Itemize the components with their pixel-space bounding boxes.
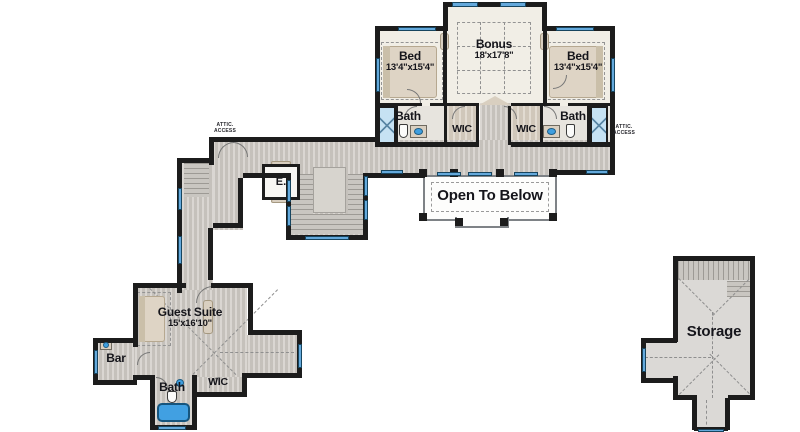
wall-segment	[177, 158, 182, 293]
window	[287, 206, 291, 226]
bed-right-dims: 13'4"x15'4"	[545, 63, 611, 73]
window	[178, 188, 182, 210]
guest-suite-dims: 15'x16'10"	[138, 319, 242, 329]
column	[549, 169, 557, 177]
wall-segment	[208, 228, 213, 280]
window	[381, 170, 403, 174]
window	[556, 27, 594, 31]
toilet-bath-left	[399, 124, 408, 138]
bath-guest-name: Bath	[151, 381, 193, 394]
window	[642, 348, 646, 372]
wall-segment	[641, 338, 677, 343]
column	[455, 218, 463, 226]
guest-suite-name: Guest Suite	[138, 306, 242, 319]
wall-segment	[248, 330, 302, 335]
room-label-wic-right: WIC	[507, 124, 545, 135]
room-label-wic-left: WIC	[443, 124, 481, 135]
window	[468, 172, 492, 176]
room-label-bath-guest: Bath	[151, 381, 193, 394]
window	[178, 236, 182, 264]
window	[586, 170, 608, 174]
attic-access-label-left: ATTIC. ACCESS	[203, 122, 247, 134]
window	[305, 236, 349, 240]
column	[500, 218, 508, 226]
window	[437, 172, 461, 176]
main-stair-landing	[313, 167, 346, 213]
window	[298, 344, 302, 368]
room-label-wic-guest: WIC	[196, 377, 240, 388]
wall-segment	[430, 103, 479, 106]
wall-segment	[375, 142, 479, 147]
wall-segment	[692, 398, 697, 430]
bed-left-dims: 13'4"x15'4"	[377, 63, 443, 73]
wall-segment	[93, 380, 137, 385]
ceiling-dash-line	[645, 357, 711, 358]
wall-segment	[211, 283, 253, 288]
wall-segment	[248, 283, 253, 335]
window	[398, 27, 436, 31]
room-label-bed-right: Bed 13'4"x15'4"	[545, 50, 611, 73]
toilet-bath-right	[566, 124, 575, 138]
bar-sink	[103, 342, 109, 348]
wic-left-name: WIC	[443, 124, 481, 135]
bonus-dims: 18'x17'8"	[455, 51, 533, 61]
bar-name: Bar	[98, 352, 134, 365]
window	[514, 172, 538, 176]
sink-bath-right	[547, 128, 556, 135]
wall-segment	[243, 173, 291, 178]
open-to-below-text: Open To Below	[423, 188, 557, 204]
window	[364, 200, 368, 220]
wall-segment	[209, 137, 379, 142]
bed-left-name: Bed	[377, 50, 443, 63]
wic-right-name: WIC	[507, 124, 545, 135]
wall-segment	[242, 373, 302, 378]
window	[364, 176, 368, 196]
wall-segment	[197, 392, 247, 397]
wall-segment	[673, 256, 755, 261]
attic-right-line2: ACCESS	[613, 130, 635, 136]
bath-right-name: Bath	[551, 110, 595, 123]
storage-stair-treads	[678, 261, 750, 280]
window	[611, 58, 615, 92]
main-stair-treads-bottom	[291, 214, 363, 234]
floor-storage	[643, 340, 675, 378]
wall-segment	[93, 338, 137, 343]
column	[419, 213, 427, 221]
wall-segment	[511, 103, 560, 106]
floor-plan: E. Bed 13'4"x15'4" Bed 13'4"x15'4" Bonus…	[0, 0, 800, 432]
room-label-storage: Storage	[675, 324, 753, 340]
storage-name: Storage	[675, 324, 753, 340]
room-label-bar: Bar	[98, 352, 134, 365]
attic-access-label-right: ATTIC. ACCESS	[602, 124, 646, 136]
bed-right-name: Bed	[545, 50, 611, 63]
secondary-stair-treads	[184, 163, 209, 197]
wic-guest-name: WIC	[196, 377, 240, 388]
bath-left-name: Bath	[386, 110, 430, 123]
wall-segment	[238, 178, 243, 228]
bathtub	[157, 403, 190, 422]
column	[419, 169, 427, 177]
room-label-bonus: Bonus 18'x17'8"	[455, 38, 533, 61]
wall-segment	[673, 376, 678, 400]
wall-segment	[641, 378, 677, 383]
elevator: E.	[262, 164, 300, 200]
wall-segment	[568, 103, 615, 106]
wall-segment	[443, 28, 447, 106]
room-label-bath-right: Bath	[551, 110, 595, 123]
window	[287, 180, 291, 202]
wall-segment	[725, 398, 730, 430]
label-open-to-below: Open To Below	[423, 188, 557, 204]
room-label-bath-left: Bath	[386, 110, 430, 123]
window	[452, 2, 478, 7]
room-label-guest-suite: Guest Suite 15'x16'10"	[138, 306, 242, 329]
wall-segment	[511, 142, 615, 147]
ceiling-dash-line	[706, 400, 707, 430]
attic-left-line2: ACCESS	[214, 128, 236, 134]
wall-segment	[375, 103, 422, 106]
room-label-bed-left: Bed 13'4"x15'4"	[377, 50, 443, 73]
column	[496, 169, 504, 177]
bonus-name: Bonus	[455, 38, 533, 51]
column	[549, 213, 557, 221]
window	[500, 2, 526, 7]
sink-bath-left	[414, 128, 423, 135]
ceiling-dash-line	[220, 352, 294, 353]
window	[158, 426, 186, 430]
